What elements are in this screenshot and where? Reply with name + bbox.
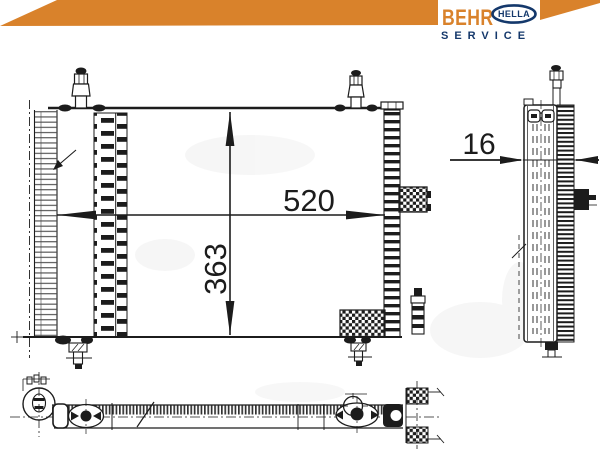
width-dim-label: 520 (283, 183, 335, 218)
depth-arrow-left (500, 156, 523, 164)
left-side-plate (11, 100, 76, 358)
bottom-mount-left (69, 399, 104, 434)
bottom-end-bracket (406, 381, 444, 449)
bottom-left-fitting (55, 336, 93, 370)
technical-drawing: 520 363 16 (0, 0, 600, 450)
side-body (524, 105, 557, 342)
height-dim-label: 363 (198, 243, 233, 295)
bottom-right-fitting (344, 337, 372, 367)
height-arrow-bottom (226, 301, 235, 335)
front-view (11, 68, 431, 370)
side-fin-core (557, 105, 574, 342)
top-right-fitting (348, 70, 364, 108)
receiver-drier-column (381, 102, 403, 337)
bottom-view (10, 372, 444, 449)
side-bracket (574, 189, 596, 210)
side-top-fitting (550, 65, 563, 105)
width-arrow-right (346, 211, 385, 220)
right-block-fitting (399, 187, 431, 212)
height-arrow-top (226, 112, 235, 146)
top-left-fitting (72, 68, 90, 109)
width-arrow-left (57, 211, 96, 220)
manifold-block (340, 310, 385, 337)
bottom-round-fitting (23, 372, 55, 437)
scan-noise (135, 135, 538, 402)
bottom-end-cap (53, 404, 68, 428)
bottom-dark-block (383, 404, 403, 427)
product-drawing-canvas: BEHR HELLA SERVICE (0, 0, 600, 450)
depth-dim-label: 16 (462, 128, 495, 161)
left-tank-column (94, 113, 127, 337)
bottle-connector (411, 288, 425, 334)
side-view (512, 65, 597, 357)
